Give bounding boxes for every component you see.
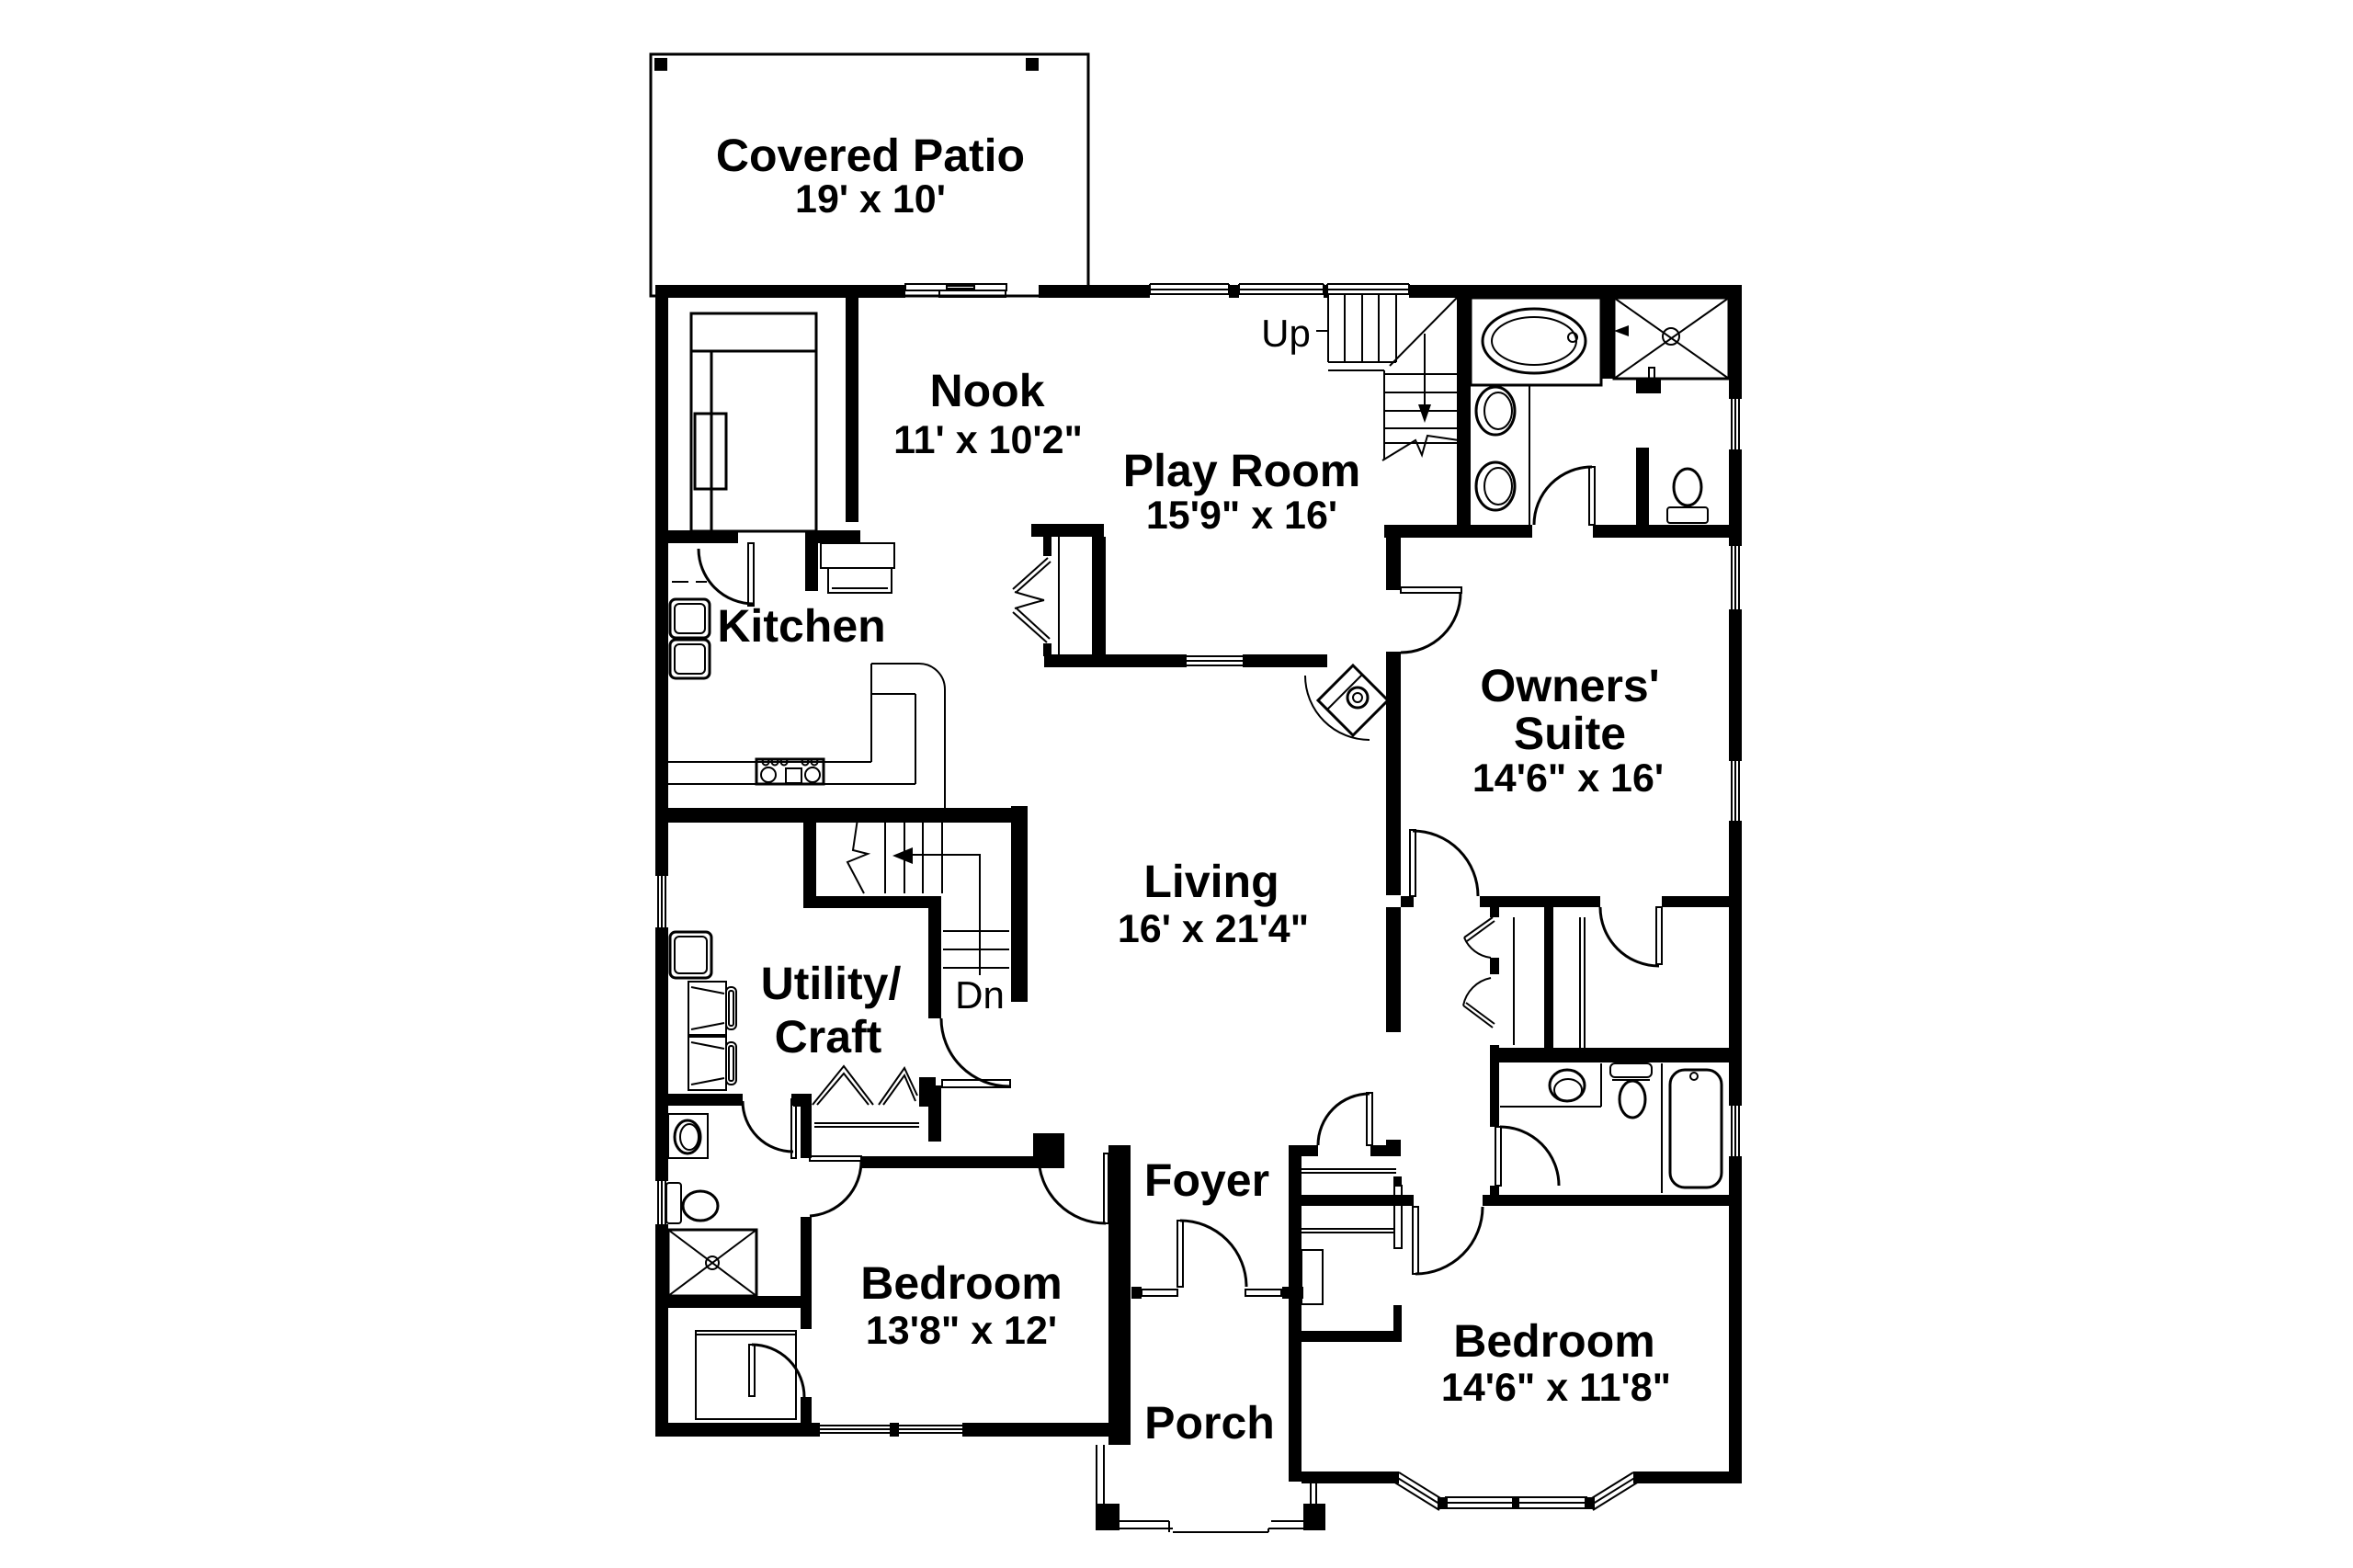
svg-text:Covered Patio: Covered Patio [716, 130, 1025, 181]
svg-text:Craft: Craft [775, 1011, 882, 1062]
svg-text:Porch: Porch [1144, 1397, 1275, 1449]
svg-text:Suite: Suite [1514, 708, 1626, 759]
svg-text:Bedroom: Bedroom [860, 1257, 1062, 1309]
svg-text:Dn: Dn [955, 973, 1005, 1017]
svg-text:11' x 10'2": 11' x 10'2" [893, 418, 1083, 462]
svg-text:Foyer: Foyer [1144, 1154, 1269, 1206]
svg-text:13'8" x 12': 13'8" x 12' [866, 1309, 1057, 1353]
svg-text:14'6" x 11'8": 14'6" x 11'8" [1441, 1366, 1671, 1410]
svg-text:Up: Up [1261, 312, 1311, 355]
svg-text:Owners': Owners' [1480, 660, 1659, 711]
svg-text:Kitchen: Kitchen [717, 600, 885, 652]
svg-text:Utility/: Utility/ [761, 958, 902, 1009]
svg-text:14'6" x 16': 14'6" x 16' [1472, 756, 1664, 801]
svg-text:15'9" x 16': 15'9" x 16' [1146, 494, 1337, 538]
svg-text:16' x 21'4": 16' x 21'4" [1118, 907, 1309, 951]
svg-text:Living: Living [1143, 856, 1279, 907]
svg-text:Bedroom: Bedroom [1453, 1315, 1654, 1367]
svg-text:19' x 10': 19' x 10' [795, 177, 946, 222]
svg-text:Play Room: Play Room [1123, 445, 1360, 496]
svg-text:Nook: Nook [930, 365, 1045, 416]
